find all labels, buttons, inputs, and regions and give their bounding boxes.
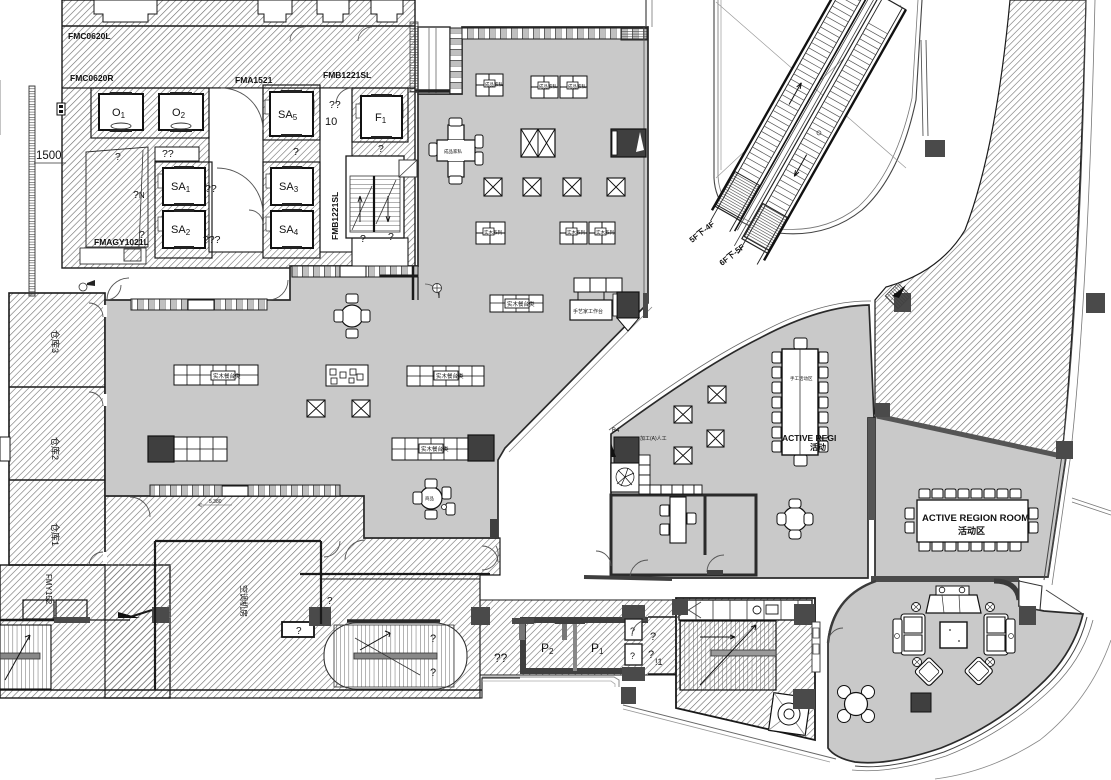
svg-text:?: ? xyxy=(293,146,299,158)
svg-text:???: ??? xyxy=(203,234,221,246)
svg-text:实木系列: 实木系列 xyxy=(596,229,614,236)
svg-text:??: ?? xyxy=(205,183,217,195)
svg-text:ACTIVE REGION ROOM: ACTIVE REGION ROOM xyxy=(922,513,1029,524)
svg-text:仓库2: 仓库2 xyxy=(50,437,61,460)
svg-text:?: ? xyxy=(430,633,436,645)
svg-text:ACTIVE REGI: ACTIVE REGI xyxy=(782,433,836,443)
svg-text:成品家私: 成品家私 xyxy=(485,81,503,88)
svg-text:实木餐台类: 实木餐台类 xyxy=(436,372,464,380)
svg-text:?: ? xyxy=(388,231,394,243)
svg-text:?: ? xyxy=(360,233,366,245)
svg-text:??: ?? xyxy=(162,148,174,160)
svg-text:?: ? xyxy=(327,596,333,607)
svg-text:FMB1221SL: FMB1221SL xyxy=(323,70,371,80)
svg-text:?: ? xyxy=(296,626,302,637)
svg-text:FMB1221SL: FMB1221SL xyxy=(330,192,340,240)
svg-text:仓库3: 仓库3 xyxy=(50,330,61,353)
svg-text:实木系列: 实木系列 xyxy=(484,229,502,236)
svg-text:成品家私: 成品家私 xyxy=(539,83,557,90)
svg-text:加工(A)人工: 加工(A)人工 xyxy=(640,435,667,442)
svg-text:??: ?? xyxy=(494,651,508,665)
svg-text:活动区: 活动区 xyxy=(958,525,985,536)
svg-text:实木餐台类: 实木餐台类 xyxy=(507,300,535,308)
svg-text:实木系列: 实木系列 xyxy=(567,229,585,236)
svg-text:5.380: 5.380 xyxy=(209,499,222,505)
svg-text:手艺家工作台: 手艺家工作台 xyxy=(573,308,603,315)
svg-text:商品: 商品 xyxy=(425,495,434,502)
svg-text:成品家私: 成品家私 xyxy=(568,83,586,90)
svg-text:!1: !1 xyxy=(655,657,663,667)
svg-text:10: 10 xyxy=(325,116,337,128)
svg-text:1500: 1500 xyxy=(36,150,62,162)
svg-text:手工活动区: 手工活动区 xyxy=(790,375,813,382)
svg-text:?: ? xyxy=(139,229,145,241)
svg-text:实木餐台类: 实木餐台类 xyxy=(421,445,449,453)
svg-text:FMC0620L: FMC0620L xyxy=(68,31,111,41)
svg-text:?: ? xyxy=(115,151,121,163)
svg-text:FMA1521: FMA1521 xyxy=(235,75,273,85)
svg-text:?: ? xyxy=(650,631,656,643)
svg-text:B4: B4 xyxy=(612,428,620,434)
svg-text:实木餐台类: 实木餐台类 xyxy=(213,372,241,380)
svg-text:?: ? xyxy=(430,667,436,679)
svg-text:?N: ?N xyxy=(133,189,145,201)
svg-text:活动: 活动 xyxy=(810,442,826,452)
svg-text:仓库1: 仓库1 xyxy=(50,523,61,546)
svg-text:?: ? xyxy=(648,649,654,661)
svg-text:空调机房: 空调机房 xyxy=(239,585,249,617)
svg-text:?: ? xyxy=(378,143,384,155)
svg-text:?: ? xyxy=(630,651,635,661)
svg-text:FMC0620R: FMC0620R xyxy=(70,73,113,83)
svg-text:??: ?? xyxy=(329,99,341,111)
svg-text:成品家私: 成品家私 xyxy=(444,148,462,155)
